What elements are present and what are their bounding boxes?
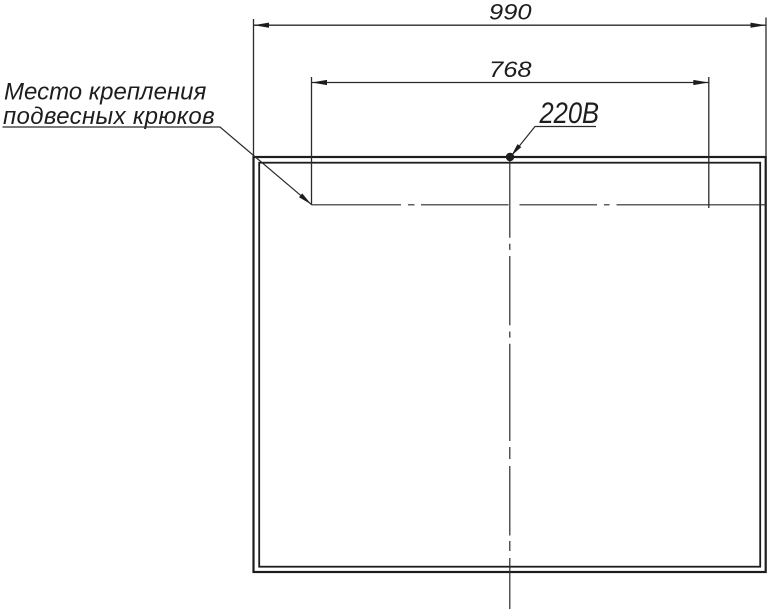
svg-text:220В: 220В <box>539 96 599 129</box>
svg-text:Место крепления: Место крепления <box>4 79 206 106</box>
svg-text:подвесных крюков: подвесных крюков <box>3 103 215 130</box>
svg-text:990: 990 <box>489 0 532 25</box>
svg-text:768: 768 <box>489 58 532 83</box>
